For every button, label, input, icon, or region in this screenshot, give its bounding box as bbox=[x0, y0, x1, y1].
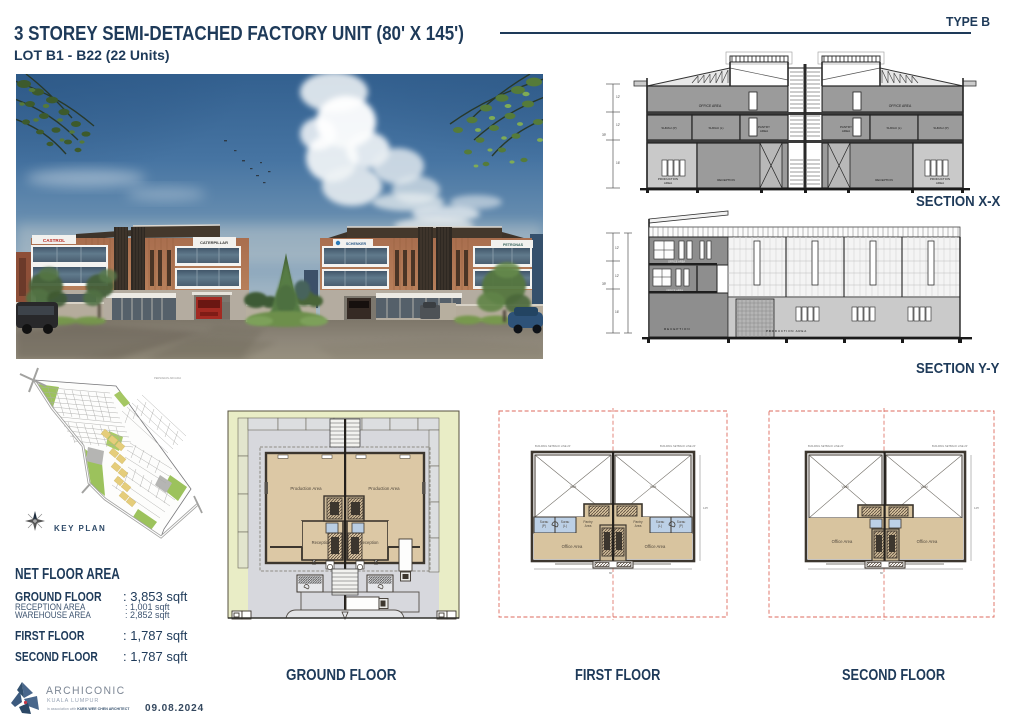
svg-text:OFFICE AREA: OFFICE AREA bbox=[889, 104, 912, 108]
svg-text:Void: Void bbox=[570, 485, 577, 489]
svg-text:16': 16' bbox=[616, 161, 621, 165]
svg-text:BUILDING SETBACK LINE 20': BUILDING SETBACK LINE 20' bbox=[932, 444, 968, 448]
svg-text:PERSIARAN ARCADIA: PERSIARAN ARCADIA bbox=[154, 376, 181, 380]
svg-text:145': 145' bbox=[974, 506, 980, 510]
svg-text:Office Area: Office Area bbox=[562, 544, 583, 549]
svg-text:SURAU (L): SURAU (L) bbox=[708, 126, 723, 130]
svg-text:16': 16' bbox=[615, 310, 620, 314]
svg-text:Office Area: Office Area bbox=[832, 539, 853, 544]
svg-text:Production Area: Production Area bbox=[368, 486, 400, 491]
svg-text:Reception: Reception bbox=[360, 540, 380, 545]
svg-text:(P): (P) bbox=[679, 524, 683, 528]
svg-text:OFFICE AREA: OFFICE AREA bbox=[668, 260, 685, 264]
svg-text:39': 39' bbox=[602, 133, 607, 137]
svg-text:RECEPTION: RECEPTION bbox=[717, 178, 735, 182]
svg-text:CASTROL: CASTROL bbox=[43, 238, 65, 243]
svg-text:Area: Area bbox=[635, 524, 642, 528]
svg-text:80': 80' bbox=[880, 571, 884, 575]
svg-text:RECEPTION: RECEPTION bbox=[875, 178, 893, 182]
svg-text:Void: Void bbox=[650, 485, 657, 489]
svg-text:Area: Area bbox=[585, 524, 592, 528]
svg-text:AREA: AREA bbox=[664, 181, 672, 185]
svg-text:CATERPILLAR: CATERPILLAR bbox=[200, 240, 228, 245]
svg-text:12': 12' bbox=[615, 274, 620, 278]
svg-text:12': 12' bbox=[616, 123, 621, 127]
svg-text:AREA: AREA bbox=[842, 129, 850, 133]
svg-text:Office Area: Office Area bbox=[645, 544, 666, 549]
svg-text:OFFICE AREA: OFFICE AREA bbox=[699, 104, 722, 108]
svg-text:BUILDING SETBACK LINE 20': BUILDING SETBACK LINE 20' bbox=[535, 444, 571, 448]
svg-text:39': 39' bbox=[602, 282, 607, 286]
svg-text:(P): (P) bbox=[542, 524, 546, 528]
svg-text:Office Area: Office Area bbox=[917, 539, 938, 544]
svg-text:12': 12' bbox=[615, 246, 620, 250]
svg-text:Void: Void bbox=[921, 485, 928, 489]
svg-text:(L): (L) bbox=[658, 524, 662, 528]
svg-text:PRODUCTION AREA: PRODUCTION AREA bbox=[766, 329, 807, 333]
svg-text:Void: Void bbox=[842, 485, 849, 489]
svg-text:80': 80' bbox=[609, 571, 613, 575]
svg-text:SURAU (P): SURAU (P) bbox=[661, 126, 676, 130]
svg-text:SURAU (P): SURAU (P) bbox=[933, 126, 948, 130]
svg-text:SURAU (L): SURAU (L) bbox=[886, 126, 901, 130]
svg-text:Production Area: Production Area bbox=[290, 486, 322, 491]
svg-text:AREA: AREA bbox=[760, 129, 768, 133]
svg-text:145': 145' bbox=[703, 506, 709, 510]
svg-text:12': 12' bbox=[616, 95, 621, 99]
svg-text:BUILDING SETBACK LINE 20': BUILDING SETBACK LINE 20' bbox=[808, 444, 844, 448]
svg-text:SCHENKER: SCHENKER bbox=[346, 242, 367, 246]
svg-text:(L): (L) bbox=[563, 524, 567, 528]
svg-text:RECEPTION: RECEPTION bbox=[664, 327, 691, 331]
svg-text:AREA: AREA bbox=[936, 181, 944, 185]
svg-text:BUILDING SETBACK LINE 20': BUILDING SETBACK LINE 20' bbox=[660, 444, 696, 448]
